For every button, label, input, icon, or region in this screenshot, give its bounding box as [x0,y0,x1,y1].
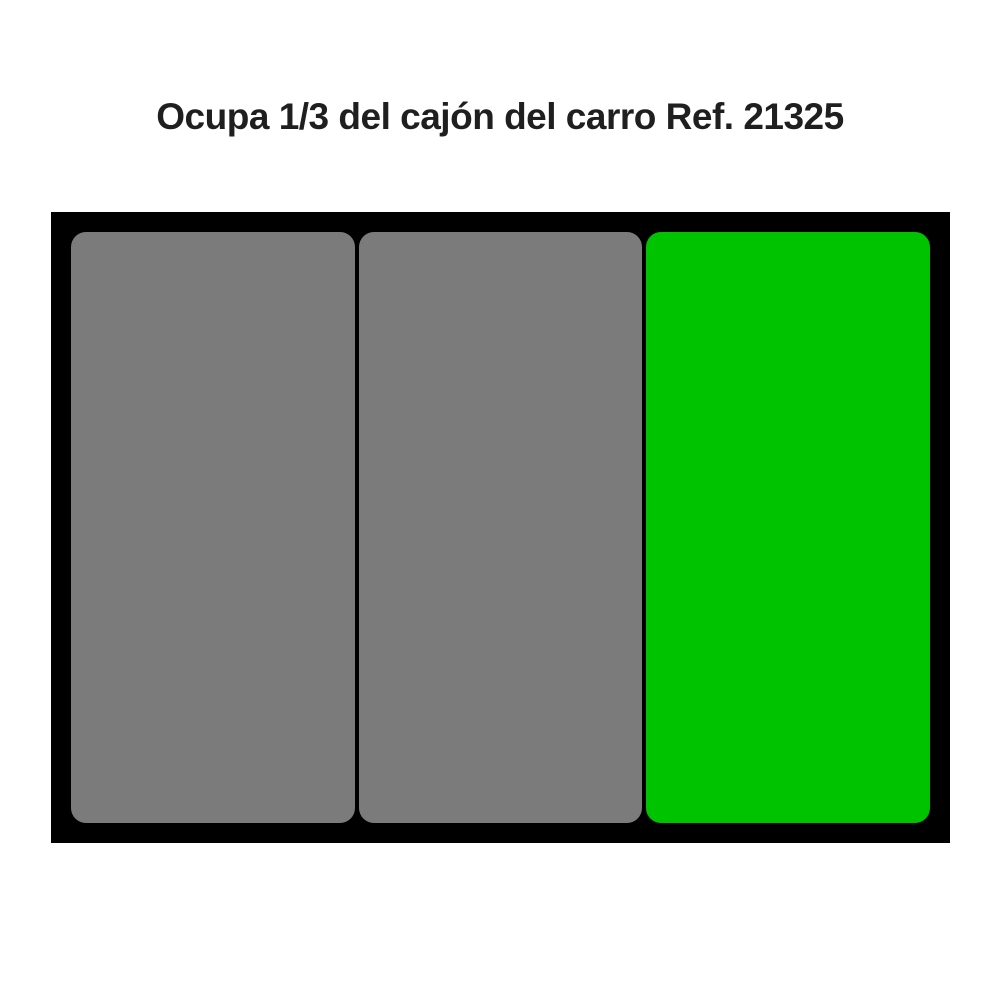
drawer-frame [51,212,950,843]
drawer-slot-occupied [646,232,930,823]
drawer-slot-empty-2 [359,232,643,823]
caption-title: Ocupa 1/3 del cajón del carro Ref. 21325 [0,96,1000,138]
drawer-slot-empty-1 [71,232,355,823]
product-illustration: Ocupa 1/3 del cajón del carro Ref. 21325 [0,0,1000,1000]
